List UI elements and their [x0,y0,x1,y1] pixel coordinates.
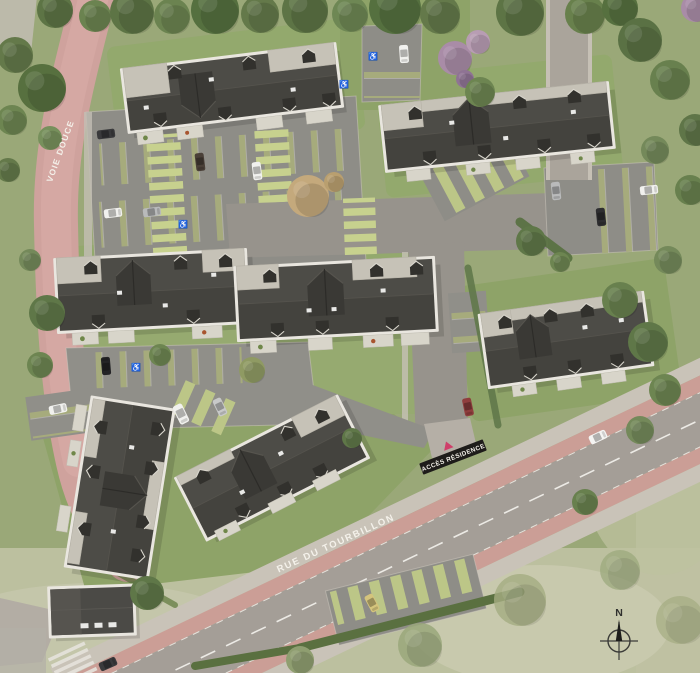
accessible-parking-icon: ♿ [131,362,141,372]
site-plan: ♿ ♿ ♿ ♿ [0,0,700,673]
compass-north-label: N [615,607,623,619]
building-4 [233,256,444,355]
parking-stub-north [362,24,422,102]
site-plan-canvas: ♿ ♿ ♿ ♿ [0,0,700,673]
accessible-parking-icon: ♿ [178,219,188,229]
building-8 [47,583,140,641]
accessible-parking-icon: ♿ [368,51,378,61]
accessible-parking-icon: ♿ [339,79,349,89]
